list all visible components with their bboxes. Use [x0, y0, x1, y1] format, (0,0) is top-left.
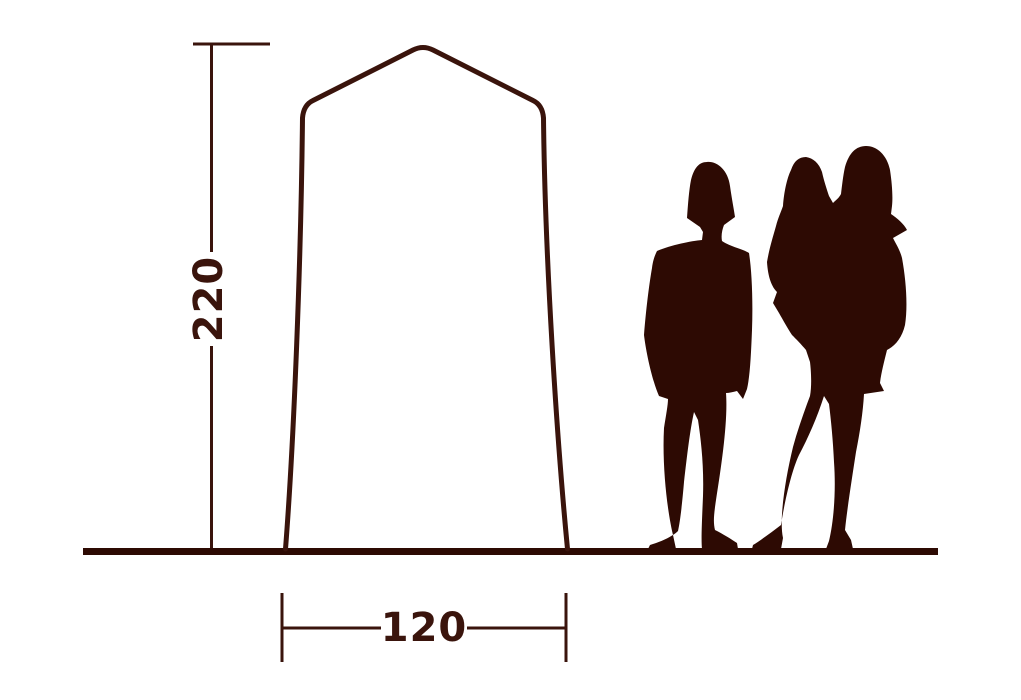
dimension-diagram: 220 120 — [0, 0, 1021, 700]
standing-adult-silhouette — [644, 162, 752, 549]
width-dimension-label: 120 — [381, 605, 468, 651]
tent-outline — [286, 48, 568, 550]
diagram-svg: 220 120 — [0, 0, 1021, 700]
adult-holding-child-silhouette — [752, 146, 907, 549]
height-dimension-label: 220 — [186, 256, 232, 343]
